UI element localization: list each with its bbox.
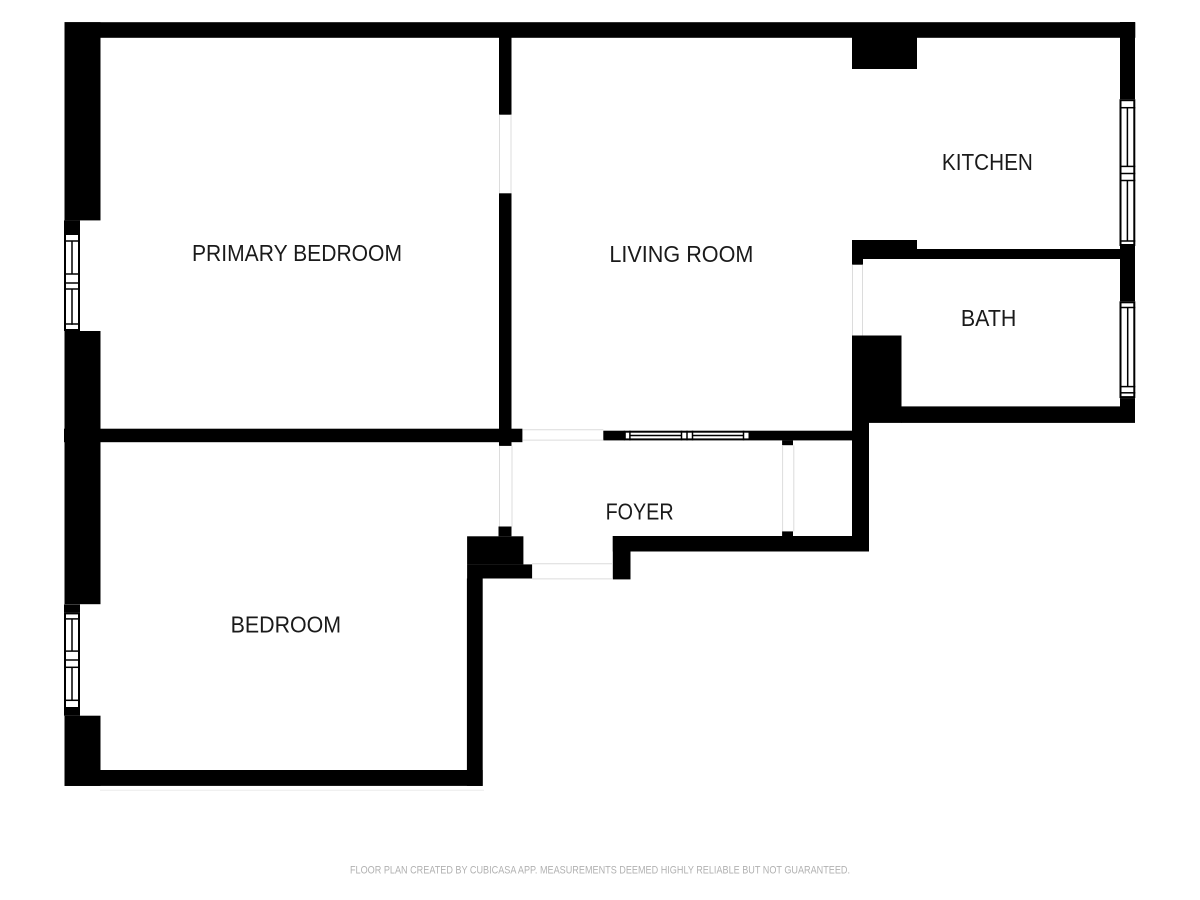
- svg-text:BATH: BATH: [961, 305, 1017, 331]
- svg-text:PRIMARY BEDROOM: PRIMARY BEDROOM: [192, 240, 402, 266]
- svg-text:FLOOR PLAN CREATED BY CUBICASA: FLOOR PLAN CREATED BY CUBICASA APP. MEAS…: [350, 864, 850, 876]
- svg-text:LIVING ROOM: LIVING ROOM: [609, 241, 753, 267]
- svg-text:KITCHEN: KITCHEN: [942, 149, 1033, 175]
- svg-text:BEDROOM: BEDROOM: [231, 611, 342, 637]
- svg-text:FOYER: FOYER: [606, 499, 674, 525]
